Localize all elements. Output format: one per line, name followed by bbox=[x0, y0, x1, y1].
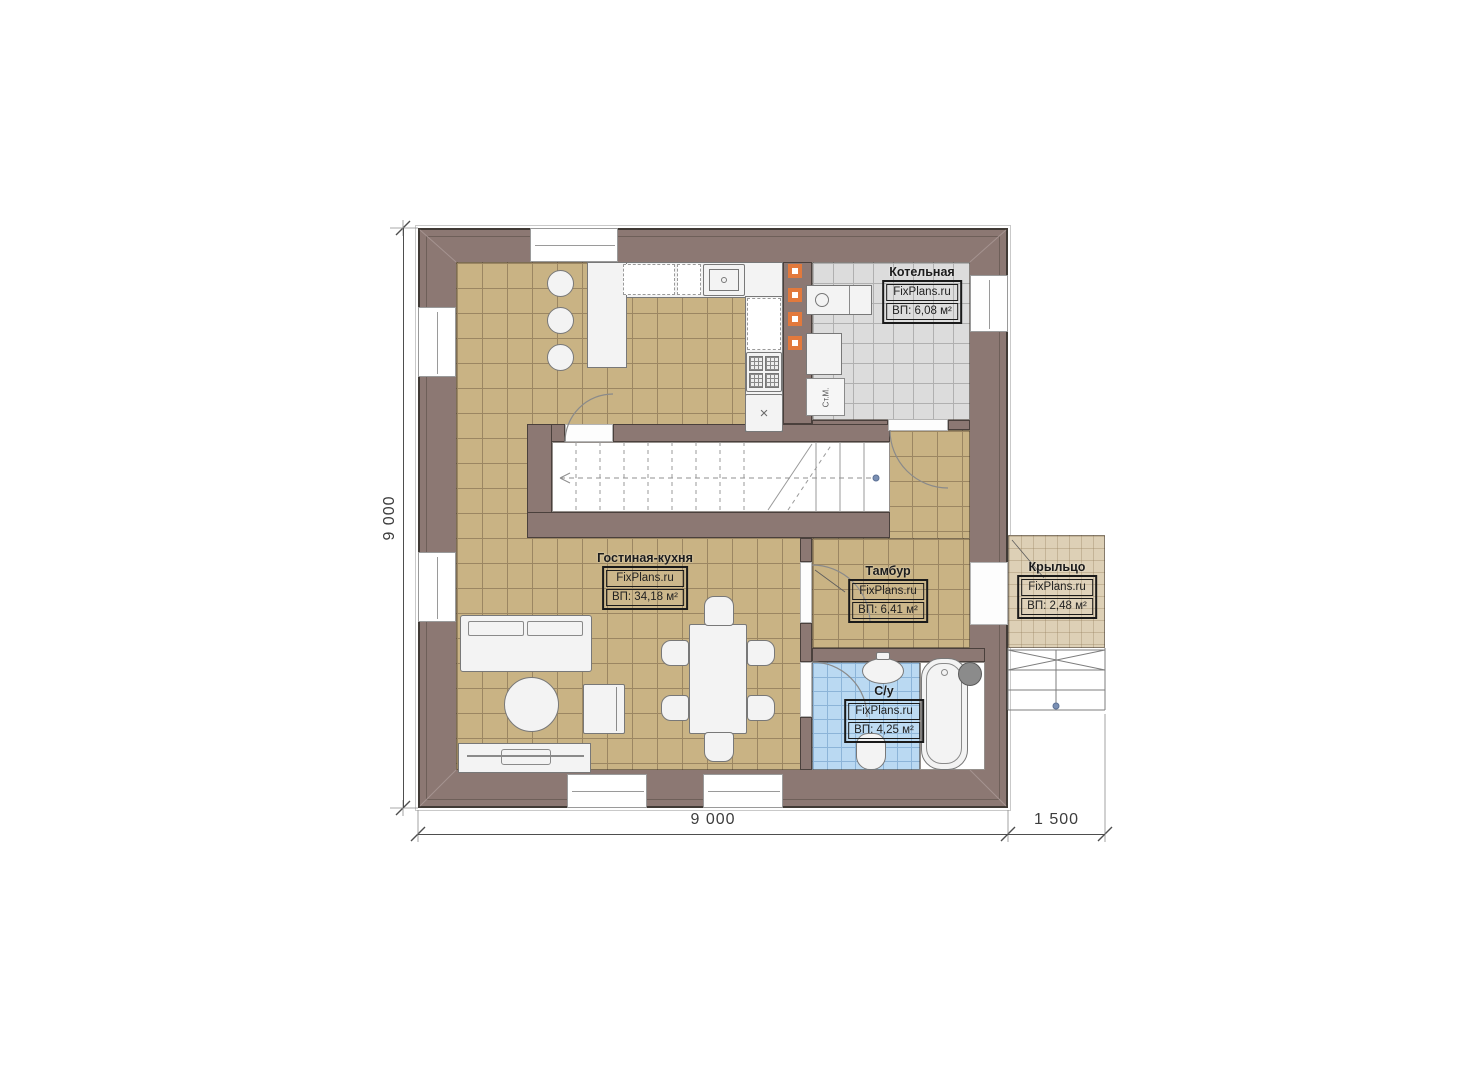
boiler-cabinet bbox=[806, 333, 842, 375]
dining-chair-left-2 bbox=[661, 695, 689, 721]
sofa bbox=[460, 615, 592, 672]
bar-stool-1 bbox=[547, 270, 574, 297]
stove-burner-3 bbox=[749, 373, 763, 388]
room-name-bathroom: С/у bbox=[874, 684, 893, 698]
flue-block-2 bbox=[788, 288, 802, 302]
boiler-counter bbox=[806, 285, 872, 315]
wall-boiler-vestibule-b bbox=[948, 420, 970, 430]
wall-living-bathroom bbox=[800, 717, 812, 770]
room-name-living: Гостиная-кухня bbox=[597, 551, 693, 565]
room-box-porch: FixPlans.ru ВП: 2,48 м² bbox=[1017, 575, 1097, 619]
room-brand-vestibule: FixPlans.ru bbox=[852, 583, 924, 600]
room-label-vestibule: Тамбур FixPlans.ru ВП: 6,41 м² bbox=[848, 564, 928, 623]
room-brand-porch: FixPlans.ru bbox=[1021, 579, 1093, 596]
dining-table bbox=[689, 624, 747, 734]
kitchen-sink-drain bbox=[721, 277, 727, 283]
room-label-porch: Крыльцо FixPlans.ru ВП: 2,48 м² bbox=[1017, 560, 1097, 619]
room-area-boiler: ВП: 6,08 м² bbox=[886, 303, 958, 320]
floor-vestibule-upper bbox=[886, 430, 970, 540]
washing-machine-label: Ст.М. bbox=[821, 387, 830, 407]
room-box-vestibule: FixPlans.ru ВП: 6,41 м² bbox=[848, 579, 928, 623]
room-area-vestibule: ВП: 6,41 м² bbox=[852, 602, 924, 619]
room-label-living: Гостиная-кухня FixPlans.ru ВП: 34,18 м² bbox=[597, 551, 693, 610]
bathroom-sink-tap bbox=[876, 652, 890, 660]
room-name-vestibule: Тамбур bbox=[865, 564, 910, 578]
room-area-porch: ВП: 2,48 м² bbox=[1021, 598, 1093, 615]
armchair bbox=[583, 684, 625, 734]
room-brand-living: FixPlans.ru bbox=[606, 570, 684, 587]
flue-block-4 bbox=[788, 336, 802, 350]
dining-chair-left-1 bbox=[661, 640, 689, 666]
dining-chair-right-1 bbox=[747, 640, 775, 666]
dining-chair-bottom bbox=[704, 732, 734, 762]
wall-living-vestibule-a bbox=[800, 538, 812, 562]
bar-stool-3 bbox=[547, 344, 574, 371]
sofa-cushion-1 bbox=[468, 621, 524, 636]
bathtub-drain bbox=[941, 669, 948, 676]
tv-console-box bbox=[501, 749, 551, 765]
dimension-height-total: 9 000 bbox=[381, 460, 401, 576]
front-door bbox=[970, 562, 1008, 625]
window-top bbox=[530, 228, 618, 262]
window-boiler-right bbox=[970, 275, 1008, 332]
door-living-stairs bbox=[565, 424, 613, 442]
room-brand-bathroom: FixPlans.ru bbox=[848, 703, 920, 720]
wall-vestibule-bathroom bbox=[812, 648, 985, 662]
room-area-living: ВП: 34,18 м² bbox=[606, 589, 684, 606]
floor-plan-scene: × Ст.М. bbox=[0, 0, 1473, 1080]
room-name-porch: Крыльцо bbox=[1029, 560, 1086, 574]
dimension-line-bottom bbox=[418, 834, 1105, 835]
flue-block-3 bbox=[788, 312, 802, 326]
window-left-lower bbox=[418, 552, 456, 622]
floor-staircase bbox=[552, 442, 890, 512]
kitchen-stove bbox=[746, 352, 782, 392]
window-left-upper bbox=[418, 307, 456, 377]
kitchen-cabinet-x: × bbox=[745, 394, 783, 432]
porch-steps bbox=[1008, 648, 1105, 710]
washing-machine: Ст.М. bbox=[806, 378, 845, 416]
room-box-bathroom: FixPlans.ru ВП: 4,25 м² bbox=[844, 699, 924, 743]
coffee-table bbox=[504, 677, 559, 732]
wall-stairs-bottom bbox=[527, 512, 890, 538]
bathroom-sink bbox=[862, 658, 904, 684]
armchair-edge-line bbox=[616, 687, 617, 731]
room-box-living: FixPlans.ru ВП: 34,18 м² bbox=[602, 566, 688, 610]
window-bottom-right bbox=[703, 774, 783, 808]
kitchen-cabinet-dashed-3 bbox=[747, 298, 781, 350]
flue-block-1 bbox=[788, 264, 802, 278]
room-brand-boiler: FixPlans.ru bbox=[886, 284, 958, 301]
wall-living-vestibule-b bbox=[800, 623, 812, 662]
room-label-bathroom: С/у FixPlans.ru ВП: 4,25 м² bbox=[844, 684, 924, 743]
boiler-counter-divider bbox=[849, 286, 850, 314]
dimension-width-main: 9 000 bbox=[663, 811, 763, 831]
sofa-cushion-2 bbox=[527, 621, 583, 636]
window-bottom-left bbox=[567, 774, 647, 808]
room-label-boiler: Котельная FixPlans.ru ВП: 6,08 м² bbox=[882, 265, 962, 324]
dimension-line-left bbox=[403, 228, 404, 808]
stove-burner-4 bbox=[765, 373, 779, 388]
stove-burner-1 bbox=[749, 356, 763, 371]
tv-stand bbox=[458, 743, 591, 773]
kitchen-island bbox=[587, 262, 627, 368]
kitchen-cabinet-dashed-1 bbox=[623, 264, 675, 295]
bar-stool-2 bbox=[547, 307, 574, 334]
kitchen-sink bbox=[703, 264, 745, 296]
boiler-unit-circle bbox=[815, 293, 829, 307]
room-area-bathroom: ВП: 4,25 м² bbox=[848, 722, 920, 739]
room-name-boiler: Котельная bbox=[889, 265, 954, 279]
bathtub-inner bbox=[926, 663, 962, 764]
stove-burner-2 bbox=[765, 356, 779, 371]
kitchen-cabinet-dashed-2 bbox=[677, 264, 701, 295]
room-box-boiler: FixPlans.ru ВП: 6,08 м² bbox=[882, 280, 962, 324]
dimension-width-porch: 1 500 bbox=[1014, 811, 1099, 831]
cabinet-x-mark: × bbox=[760, 405, 769, 422]
dining-chair-top bbox=[704, 596, 734, 626]
door-boiler-vestibule bbox=[888, 419, 948, 431]
water-heater bbox=[958, 662, 982, 686]
door-bathroom bbox=[800, 662, 812, 717]
door-living-vestibule bbox=[800, 562, 812, 623]
dining-chair-right-2 bbox=[747, 695, 775, 721]
